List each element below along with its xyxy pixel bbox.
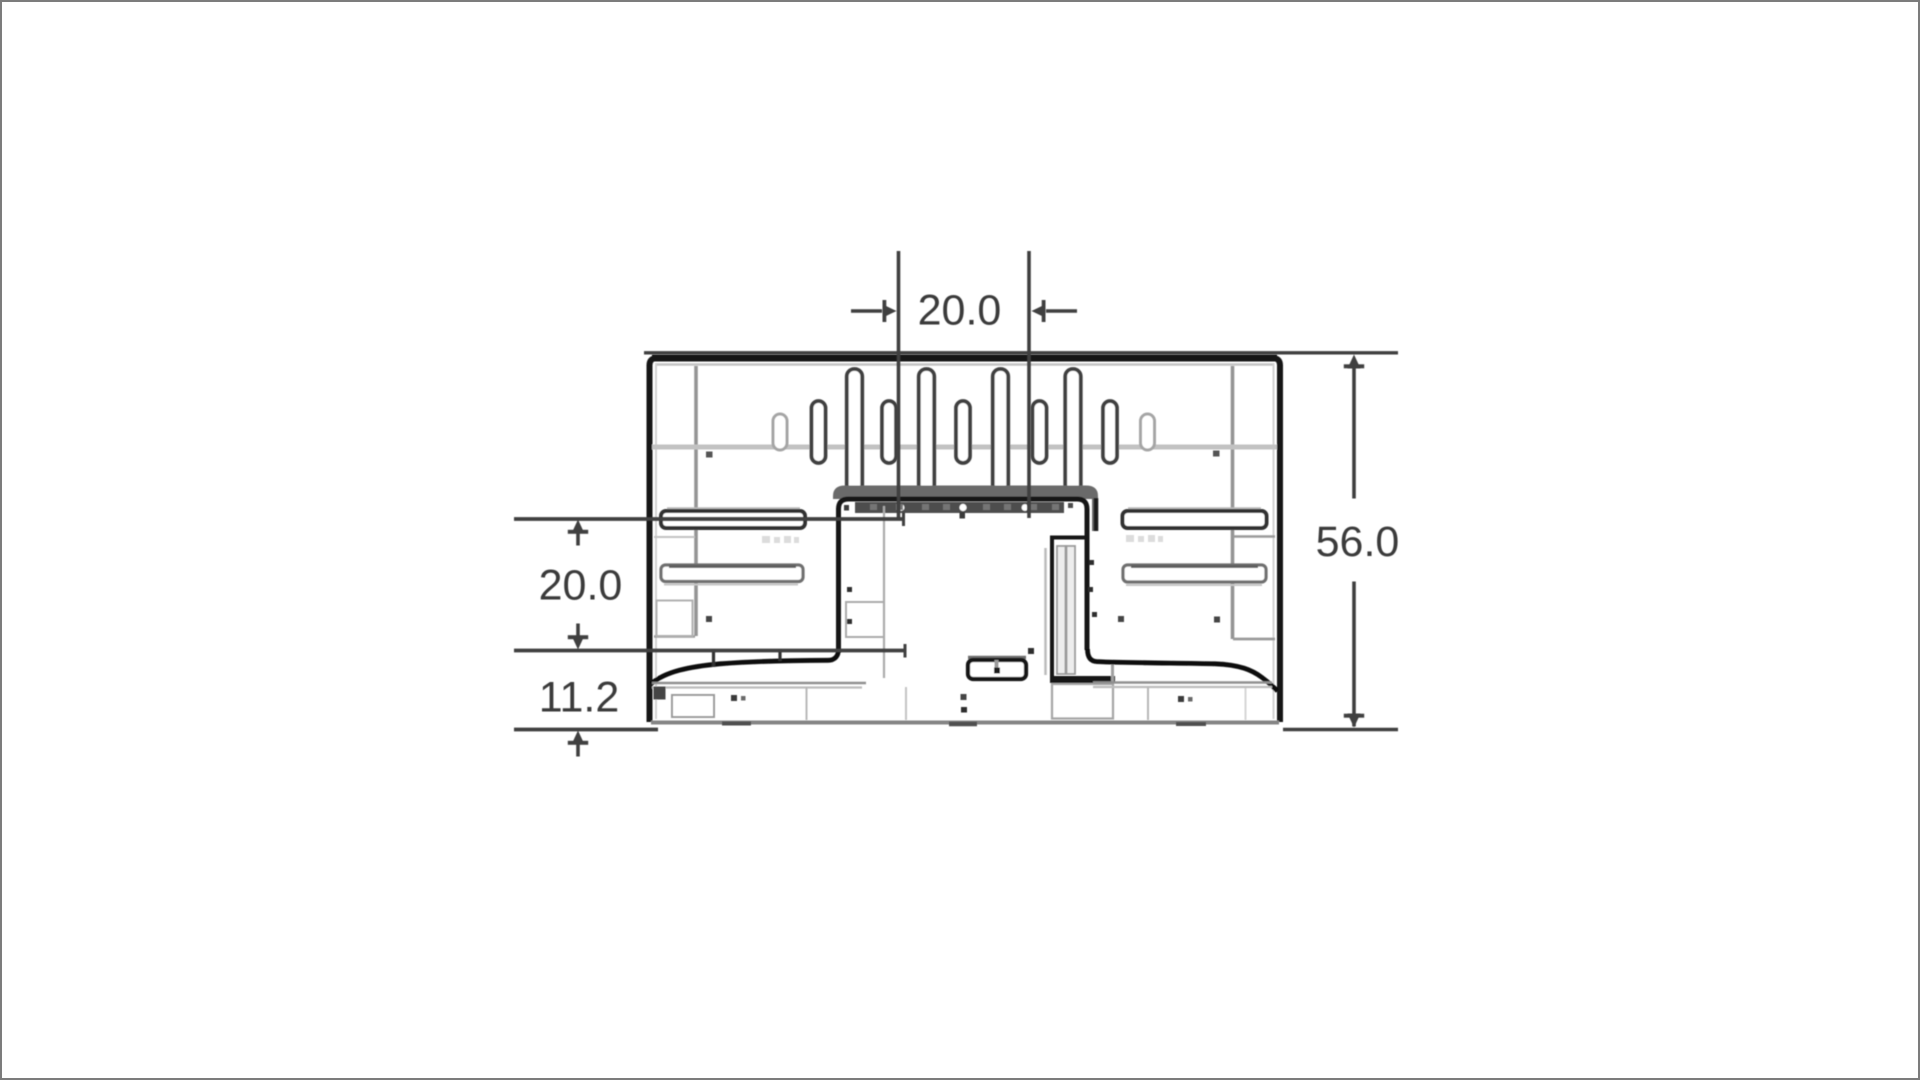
svg-text:11.2: 11.2 [539, 674, 620, 722]
svg-text:56.0: 56.0 [1316, 518, 1400, 566]
svg-text:20.0: 20.0 [918, 287, 1002, 335]
svg-text:20.0: 20.0 [539, 562, 623, 610]
